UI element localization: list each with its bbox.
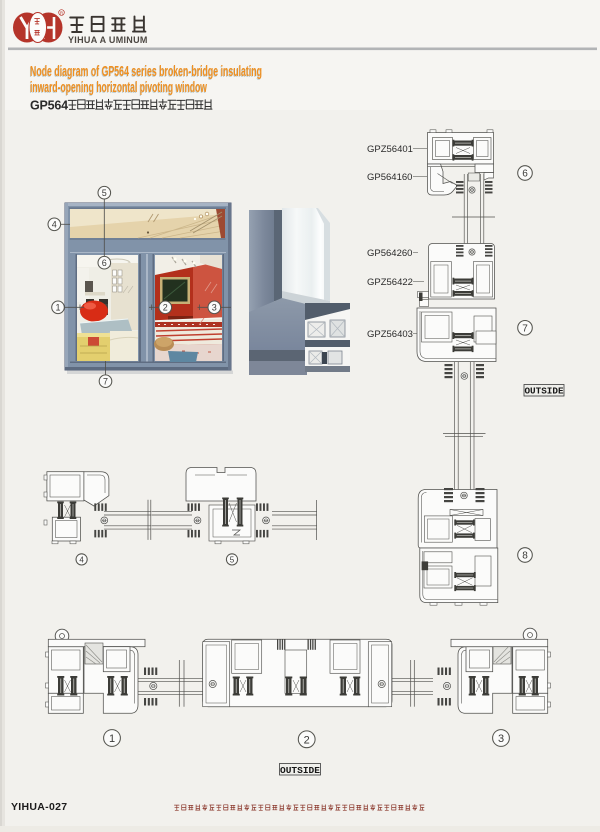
svg-text:GPZ56422: GPZ56422	[367, 277, 413, 288]
svg-text:3: 3	[212, 303, 217, 313]
svg-text:7: 7	[103, 376, 108, 386]
svg-text:GP564260: GP564260	[367, 248, 412, 259]
svg-text:1: 1	[55, 303, 60, 313]
svg-text:6: 6	[522, 169, 528, 180]
svg-text:GP564160: GP564160	[367, 172, 412, 183]
svg-text:YIHUA A UMINUM: YIHUA A UMINUM	[68, 35, 148, 45]
svg-text:2: 2	[163, 303, 168, 313]
svg-text:8: 8	[522, 551, 528, 562]
svg-text:1: 1	[109, 733, 115, 745]
svg-text:GPZ56403: GPZ56403	[367, 329, 413, 340]
svg-text:5: 5	[230, 555, 235, 564]
svg-text:R: R	[60, 11, 63, 16]
svg-text:inward-opening horizontal pivo: inward-opening horizontal pivoting windo…	[30, 80, 207, 96]
svg-text:YIHUA-027: YIHUA-027	[11, 801, 67, 813]
svg-text:OUTSIDE: OUTSIDE	[524, 386, 563, 397]
svg-text:3: 3	[498, 733, 504, 745]
svg-text:5: 5	[102, 188, 107, 198]
svg-text:6: 6	[102, 258, 107, 268]
svg-text:2: 2	[304, 734, 310, 746]
svg-text:7: 7	[522, 323, 528, 334]
svg-text:4: 4	[52, 220, 57, 230]
svg-text:OUTSIDE: OUTSIDE	[280, 765, 320, 776]
svg-text:GPZ56401: GPZ56401	[367, 144, 413, 155]
svg-text:GP564: GP564	[30, 99, 68, 113]
svg-text:Node diagram of GP564 series b: Node diagram of GP564 series broken-brid…	[30, 64, 262, 80]
svg-text:4: 4	[79, 555, 84, 564]
